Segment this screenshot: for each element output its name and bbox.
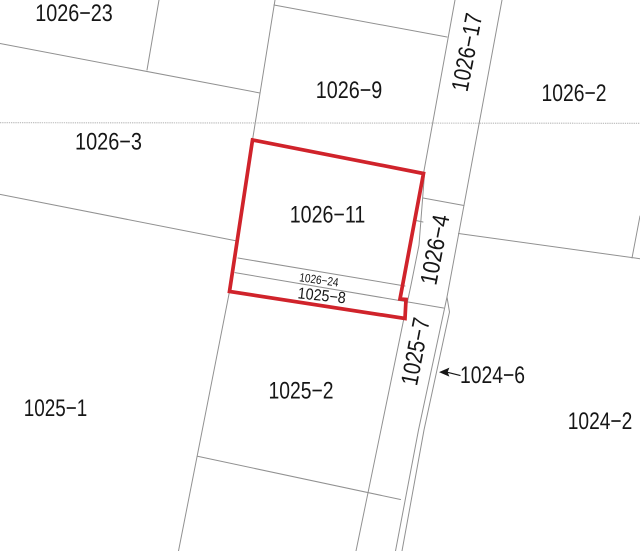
svg-text:1024−2: 1024−2	[568, 408, 633, 435]
svg-text:1024−6: 1024−6	[460, 362, 525, 389]
svg-text:1025−2: 1025−2	[269, 378, 334, 405]
svg-text:1026−9: 1026−9	[316, 77, 383, 104]
svg-text:1026−3: 1026−3	[75, 129, 142, 156]
svg-text:1026−11: 1026−11	[290, 202, 366, 229]
svg-text:1026−2: 1026−2	[542, 80, 607, 107]
svg-text:1026−23: 1026−23	[35, 0, 113, 27]
svg-text:1025−1: 1025−1	[24, 395, 88, 422]
